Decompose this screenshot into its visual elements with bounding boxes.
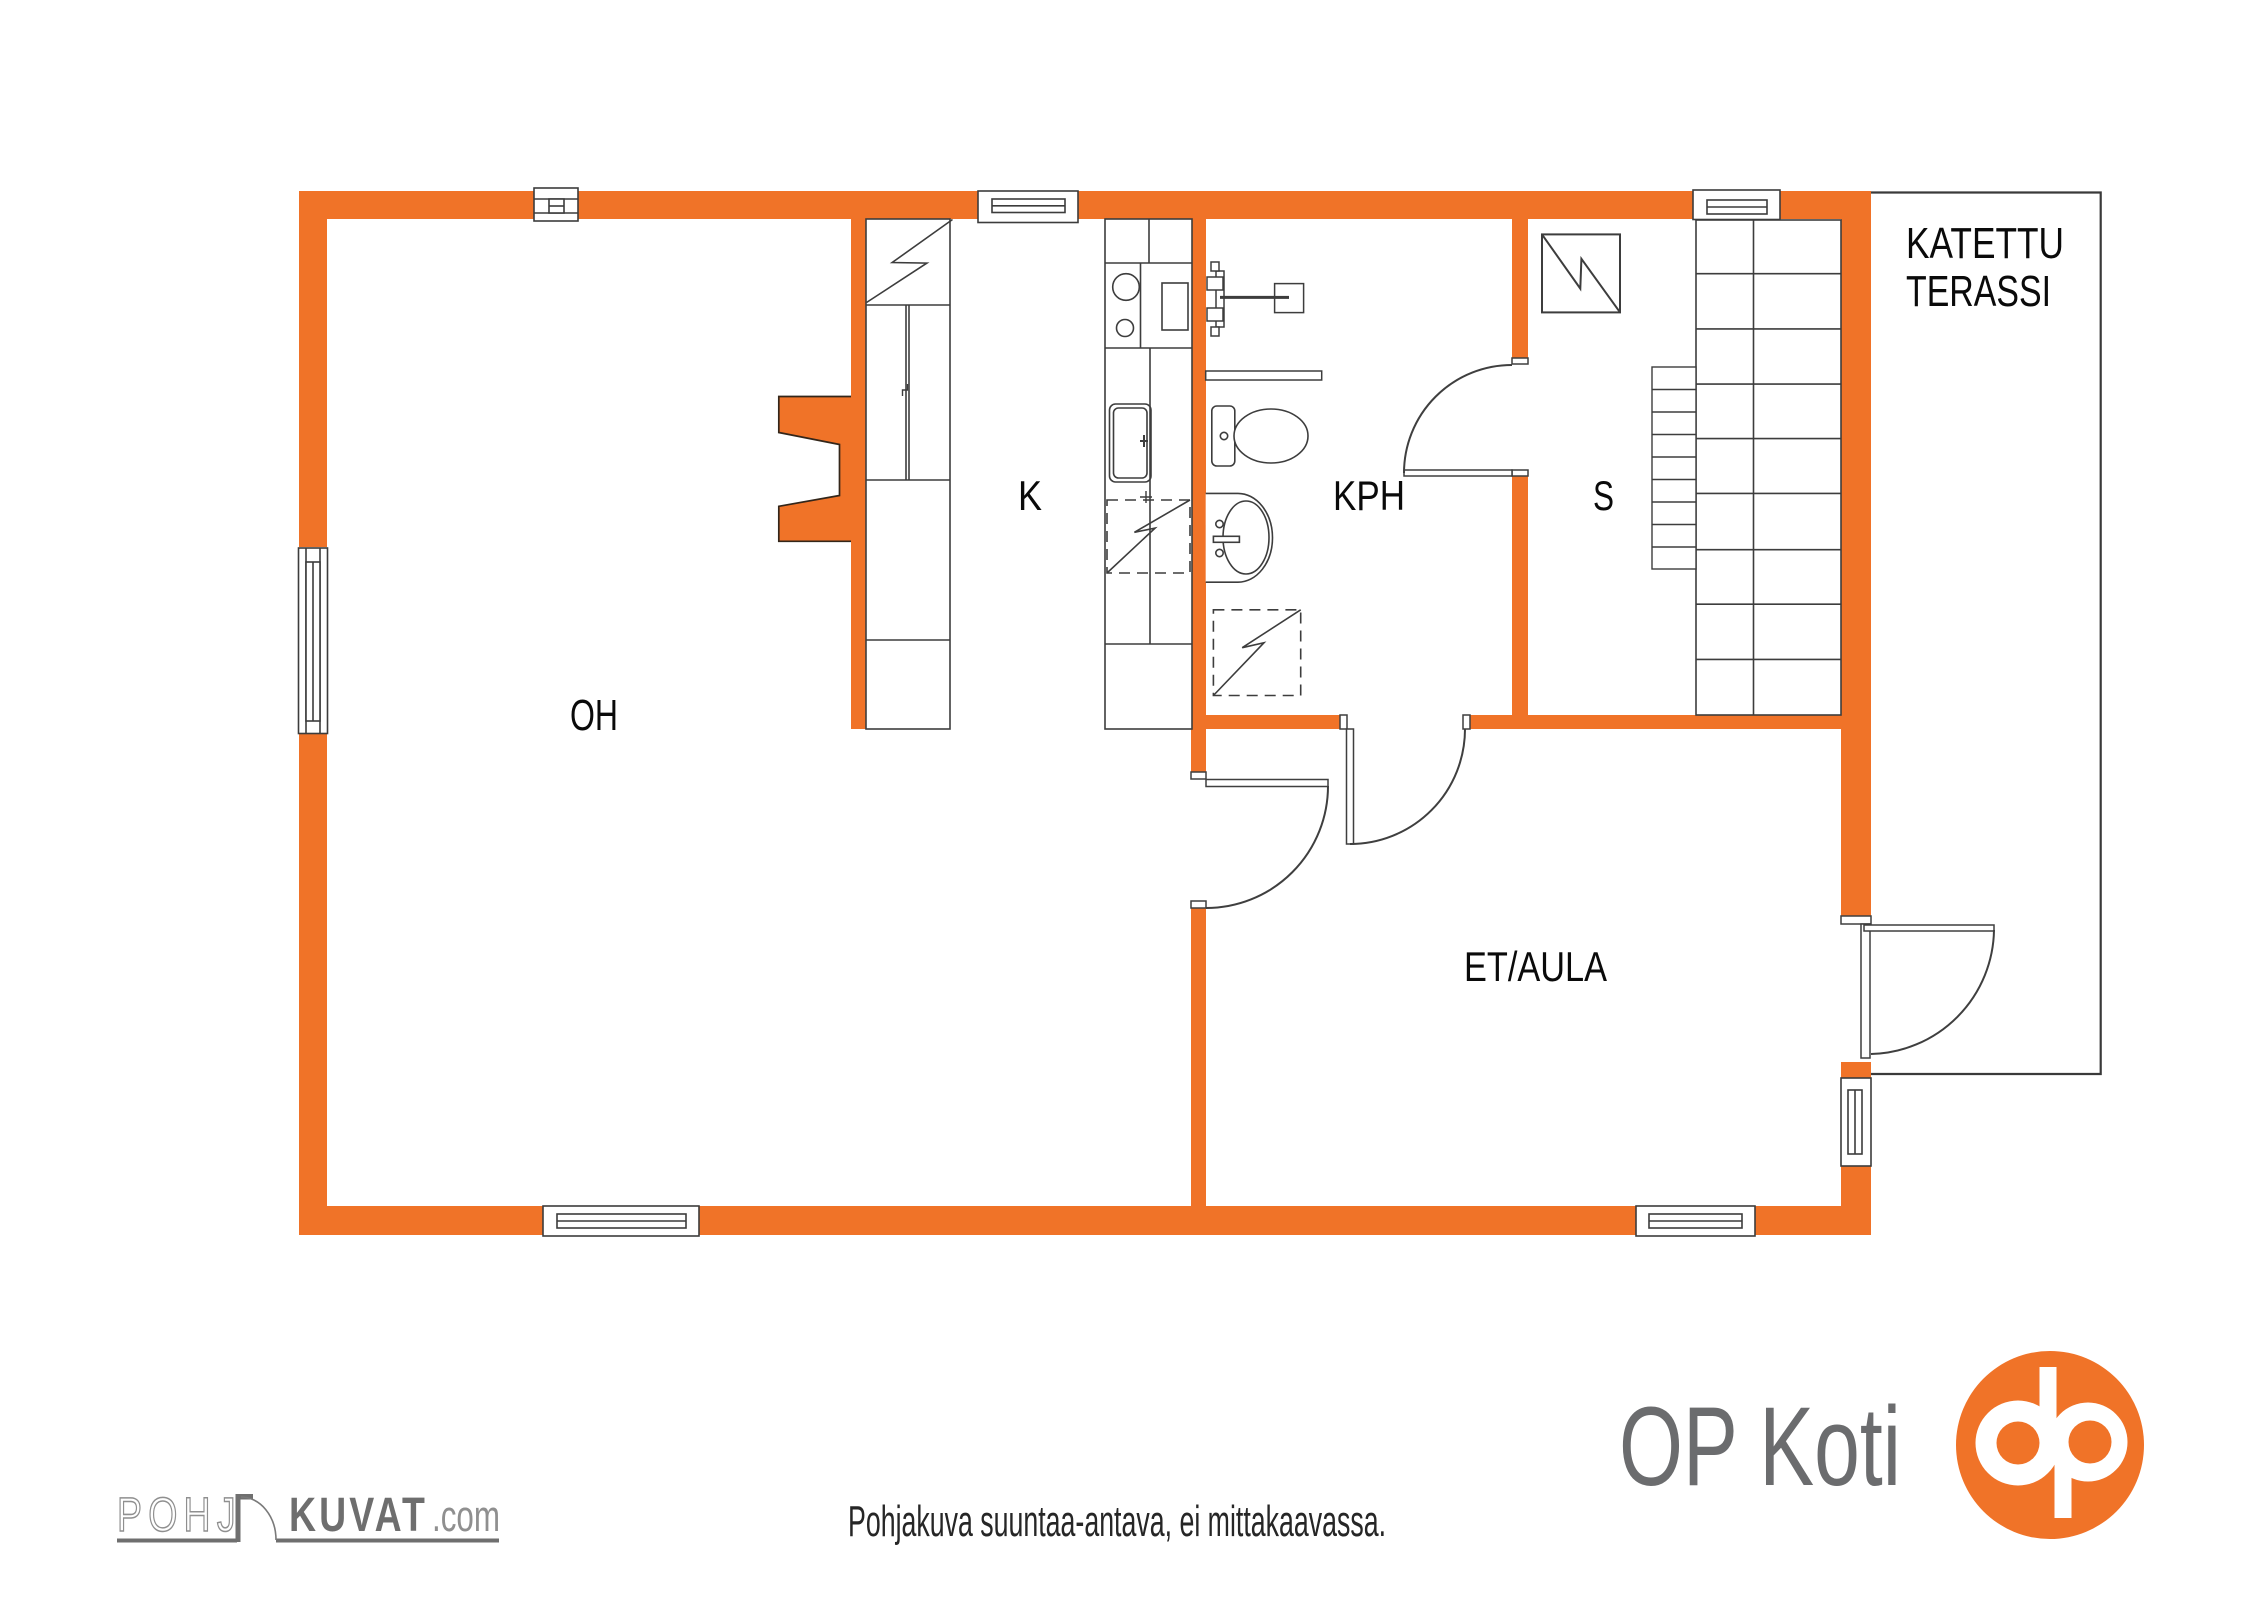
svg-text:POHJ: POHJ bbox=[117, 1489, 242, 1543]
svg-text:OH: OH bbox=[570, 691, 618, 740]
svg-text:KPH: KPH bbox=[1333, 472, 1405, 519]
svg-text:S: S bbox=[1593, 472, 1614, 519]
svg-text:ET/AULA: ET/AULA bbox=[1464, 943, 1607, 990]
svg-text:.com: .com bbox=[432, 1492, 500, 1541]
svg-text:KUVAT: KUVAT bbox=[289, 1489, 428, 1543]
svg-text:KATETTU: KATETTU bbox=[1906, 219, 2064, 268]
svg-text:K: K bbox=[1018, 472, 1042, 519]
svg-text:TERASSI: TERASSI bbox=[1906, 267, 2051, 316]
svg-text:OP Koti: OP Koti bbox=[1619, 1384, 1901, 1509]
svg-text:Pohjakuva suuntaa-antava, ei m: Pohjakuva suuntaa-antava, ei mittakaavas… bbox=[848, 1497, 1386, 1546]
